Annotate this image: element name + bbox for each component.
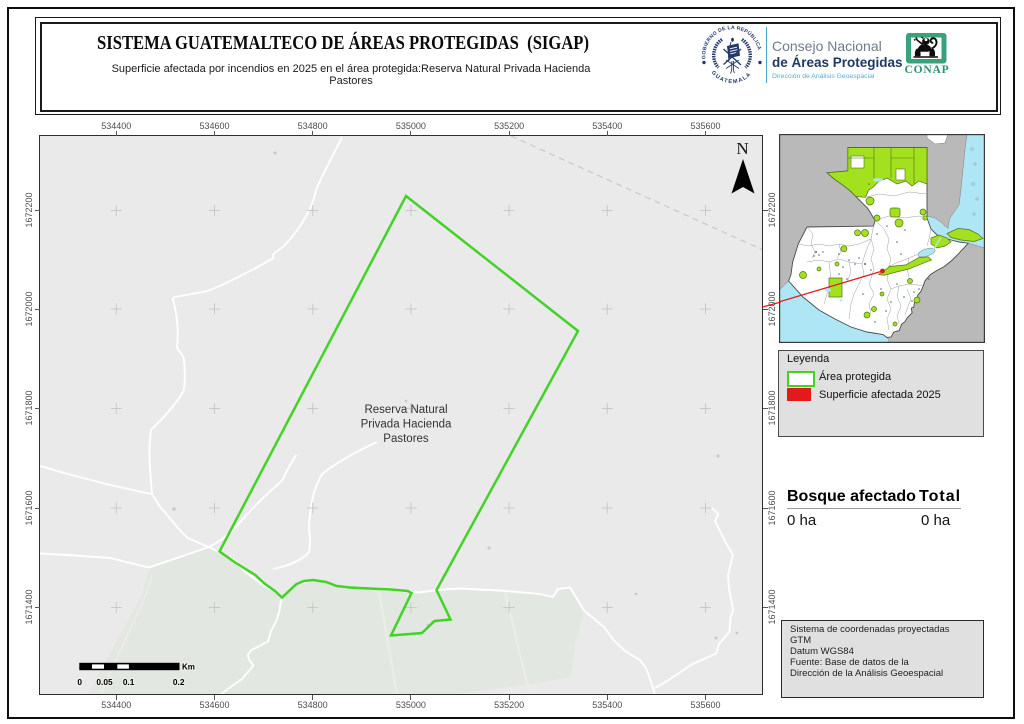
svg-text:SISTEMA GUATEMALTECO DE ÁREAS: SISTEMA GUATEMALTECO DE ÁREAS PROTEGIDAS… [97,31,589,54]
svg-text:CONAP: CONAP [905,64,950,76]
